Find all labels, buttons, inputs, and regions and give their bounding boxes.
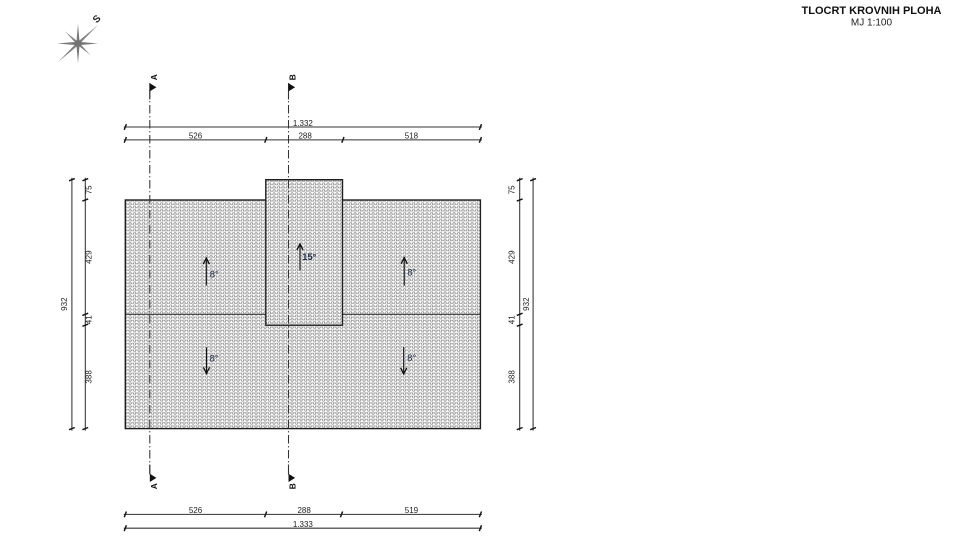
svg-text:288: 288 xyxy=(297,506,311,515)
svg-text:S: S xyxy=(91,13,104,26)
svg-text:526: 526 xyxy=(189,132,203,141)
svg-text:TLOCRT KROVNIH PLOHA: TLOCRT KROVNIH PLOHA xyxy=(802,5,942,17)
svg-text:932: 932 xyxy=(522,297,531,311)
svg-text:519: 519 xyxy=(405,506,419,515)
svg-text:429: 429 xyxy=(508,250,517,264)
svg-text:8°: 8° xyxy=(210,269,219,279)
svg-text:B: B xyxy=(288,483,298,489)
svg-text:8°: 8° xyxy=(407,353,416,363)
svg-text:75: 75 xyxy=(508,185,517,194)
svg-text:75: 75 xyxy=(84,185,93,194)
svg-text:41: 41 xyxy=(508,315,517,324)
svg-text:288: 288 xyxy=(298,132,312,141)
svg-text:932: 932 xyxy=(60,297,69,311)
svg-text:B: B xyxy=(288,74,298,80)
svg-text:8°: 8° xyxy=(210,353,219,363)
svg-text:41: 41 xyxy=(84,315,93,324)
svg-text:518: 518 xyxy=(405,132,419,141)
svg-text:15°: 15° xyxy=(302,252,316,262)
svg-text:429: 429 xyxy=(84,250,93,264)
svg-text:A: A xyxy=(149,483,159,489)
svg-text:8°: 8° xyxy=(407,267,416,277)
svg-text:388: 388 xyxy=(508,370,517,384)
svg-text:388: 388 xyxy=(84,370,93,384)
svg-text:1.332: 1.332 xyxy=(293,119,314,128)
svg-text:MJ 1:100: MJ 1:100 xyxy=(851,18,893,29)
svg-text:1.333: 1.333 xyxy=(293,520,314,529)
svg-text:A: A xyxy=(149,74,159,80)
svg-text:526: 526 xyxy=(189,506,203,515)
